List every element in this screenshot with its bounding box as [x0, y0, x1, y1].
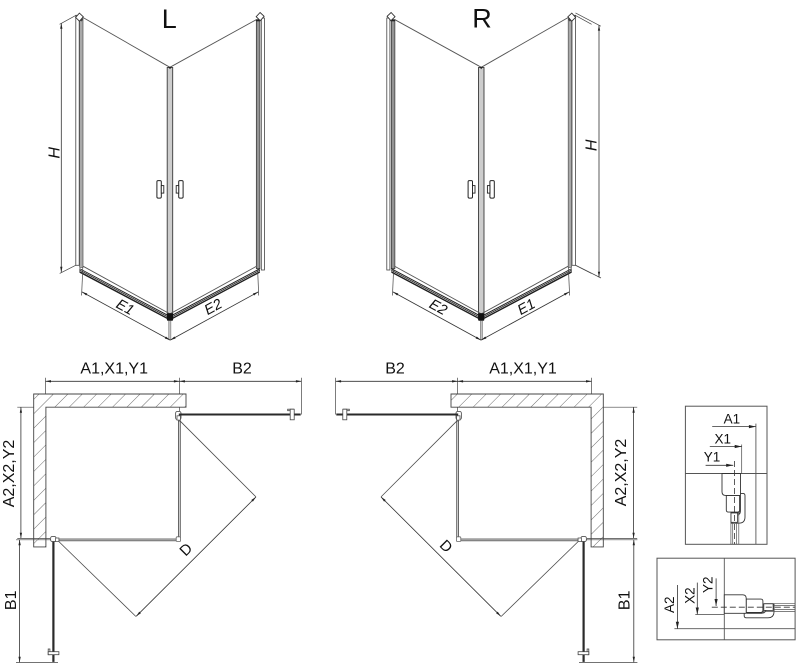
svg-text:A2,X2,Y2: A2,X2,Y2 — [1, 440, 18, 508]
svg-text:Y1: Y1 — [704, 450, 721, 465]
svg-text:B1: B1 — [3, 590, 20, 610]
svg-text:B1: B1 — [617, 590, 634, 610]
svg-text:A1,X1,Y1: A1,X1,Y1 — [489, 361, 557, 378]
svg-text:A2,X2,Y2: A2,X2,Y2 — [613, 439, 630, 507]
svg-text:Y2: Y2 — [701, 577, 716, 594]
svg-text:X1: X1 — [715, 432, 732, 447]
svg-text:A1,X1,Y1: A1,X1,Y1 — [80, 361, 148, 378]
svg-text:A1: A1 — [724, 411, 741, 426]
svg-text:H: H — [47, 147, 64, 159]
svg-text:H: H — [583, 139, 600, 151]
svg-text:B2: B2 — [385, 361, 405, 378]
svg-text:A2: A2 — [662, 596, 677, 613]
svg-text:X2: X2 — [683, 587, 698, 604]
svg-text:L: L — [162, 4, 177, 34]
svg-text:B2: B2 — [232, 361, 252, 378]
svg-text:R: R — [472, 4, 492, 34]
